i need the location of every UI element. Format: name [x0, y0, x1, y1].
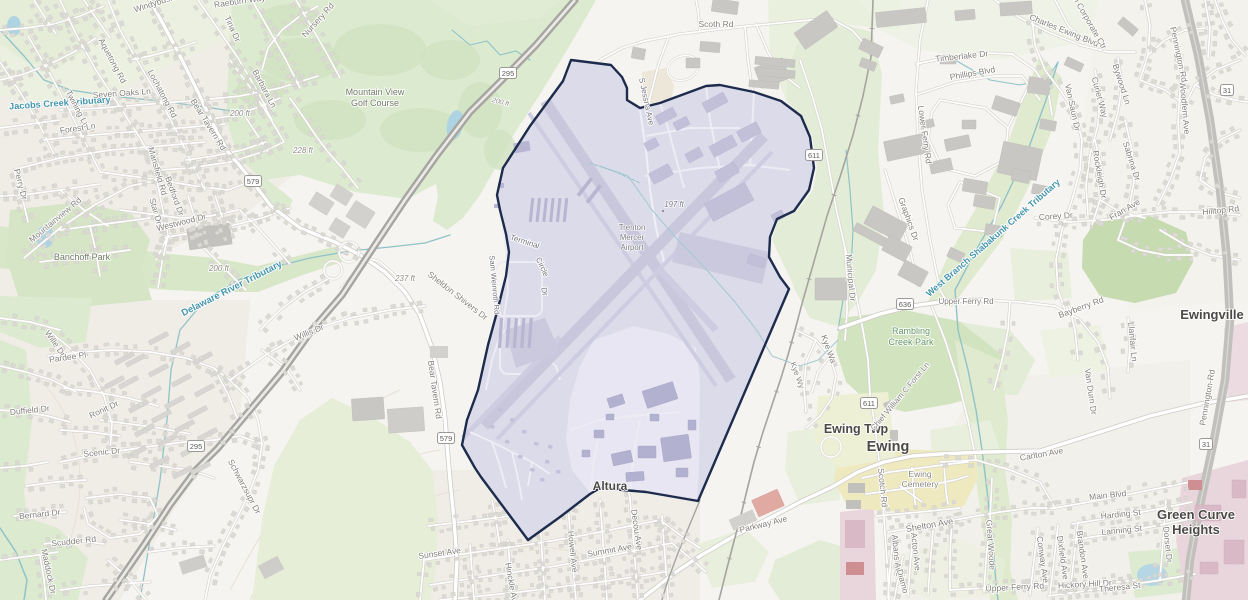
- svg-text:611: 611: [863, 399, 875, 408]
- svg-text:Heights: Heights: [1172, 522, 1220, 537]
- svg-text:579: 579: [440, 434, 453, 443]
- svg-text:31: 31: [1202, 440, 1210, 449]
- svg-text:200 ft: 200 ft: [229, 109, 251, 118]
- svg-text:Rambling: Rambling: [892, 326, 930, 336]
- svg-text:295: 295: [502, 69, 515, 78]
- svg-text:Scoth Rd: Scoth Rd: [699, 19, 734, 29]
- svg-text:Cemetery: Cemetery: [902, 479, 940, 489]
- svg-text:197 ft: 197 ft: [664, 200, 684, 209]
- svg-text:Altura: Altura: [593, 479, 628, 493]
- svg-text:228 ft: 228 ft: [292, 146, 314, 155]
- svg-text:Ewing: Ewing: [908, 469, 931, 479]
- svg-text:Banchoff Park: Banchoff Park: [54, 252, 111, 262]
- svg-text:Trenton: Trenton: [619, 223, 646, 232]
- svg-text:579: 579: [247, 177, 260, 186]
- svg-text:Airport: Airport: [621, 243, 645, 252]
- svg-text:611: 611: [808, 151, 820, 160]
- svg-text:Mountain View: Mountain View: [346, 87, 405, 97]
- svg-text:Golf Course: Golf Course: [351, 98, 399, 108]
- svg-text:237 ft: 237 ft: [394, 274, 416, 283]
- svg-text:Ewing: Ewing: [867, 439, 910, 455]
- svg-text:Green Curve: Green Curve: [1157, 507, 1235, 522]
- svg-text:Ewingville: Ewingville: [1180, 307, 1244, 322]
- svg-text:636: 636: [899, 300, 912, 309]
- svg-text:Creek Park: Creek Park: [888, 337, 934, 347]
- svg-text:Mercer: Mercer: [620, 233, 645, 242]
- svg-text:200 ft: 200 ft: [208, 264, 230, 273]
- svg-text:31: 31: [1223, 86, 1231, 95]
- svg-text:295: 295: [190, 442, 203, 451]
- svg-text:Upper Ferry Rd: Upper Ferry Rd: [938, 297, 993, 306]
